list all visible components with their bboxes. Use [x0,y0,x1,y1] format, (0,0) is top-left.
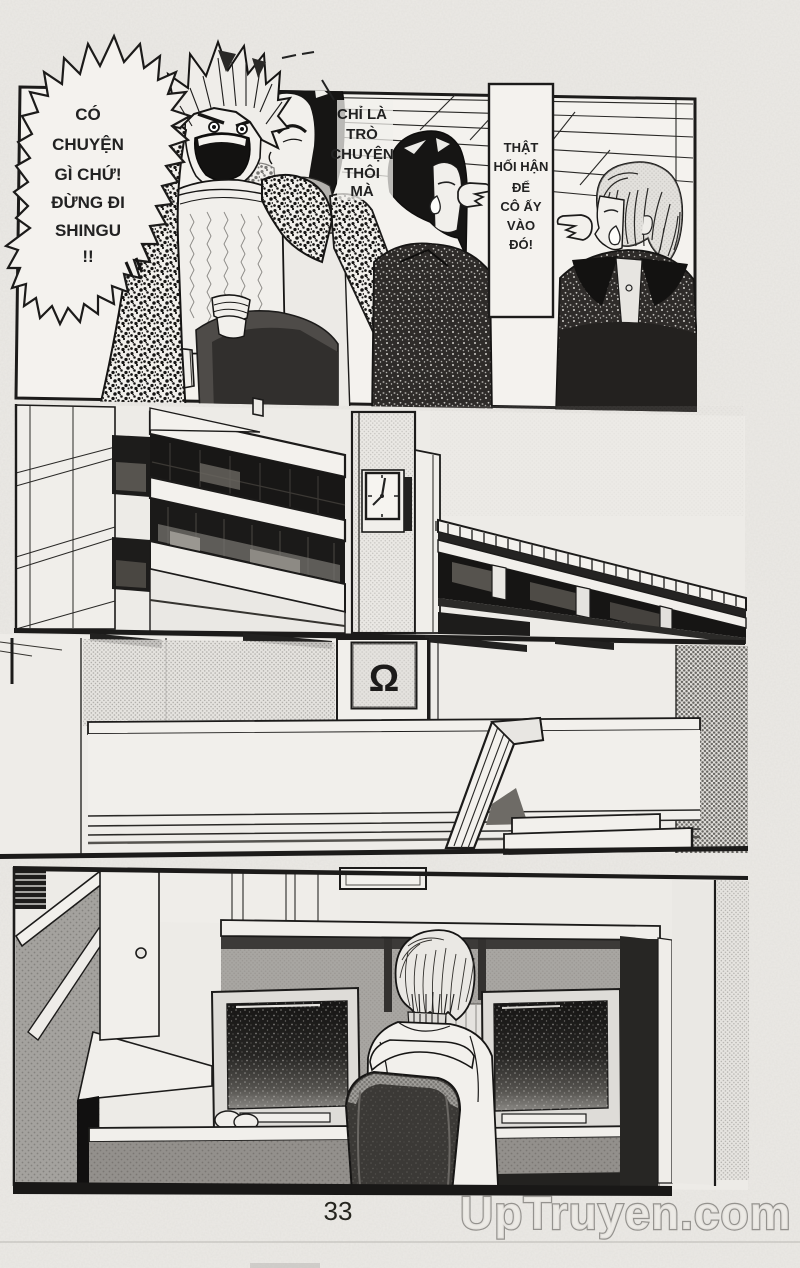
svg-text:UpTruyen.com: UpTruyen.com [460,1187,792,1239]
svg-text:CÔ ẤY: CÔ ẤY [500,199,542,214]
svg-text:ĐỪNG ĐI: ĐỪNG ĐI [51,193,125,212]
svg-text:THÔI: THÔI [344,164,380,182]
svg-text:GÌ CHỨ!: GÌ CHỨ! [55,165,122,184]
svg-text:33: 33 [324,1196,353,1226]
svg-text:HỐI HẬN: HỐI HẬN [494,159,549,174]
svg-text:Ω: Ω [369,658,399,700]
svg-text:CÓ: CÓ [75,105,101,124]
svg-text:CHUYỆN: CHUYỆN [330,145,393,163]
svg-text:MÀ: MÀ [350,183,373,200]
svg-text:VÀO: VÀO [507,218,535,233]
svg-text:THẬT: THẬT [504,140,539,155]
svg-text:TRÒ: TRÒ [346,125,378,143]
svg-text:CHUYỆN: CHUYỆN [52,135,124,154]
svg-text:ĐỂ: ĐỂ [512,180,530,195]
svg-text:ĐÓ!: ĐÓ! [509,237,533,252]
svg-text:CHỈ LÀ: CHỈ LÀ [337,106,387,123]
svg-text:!!: !! [82,247,93,266]
svg-text:SHINGU: SHINGU [55,221,121,240]
